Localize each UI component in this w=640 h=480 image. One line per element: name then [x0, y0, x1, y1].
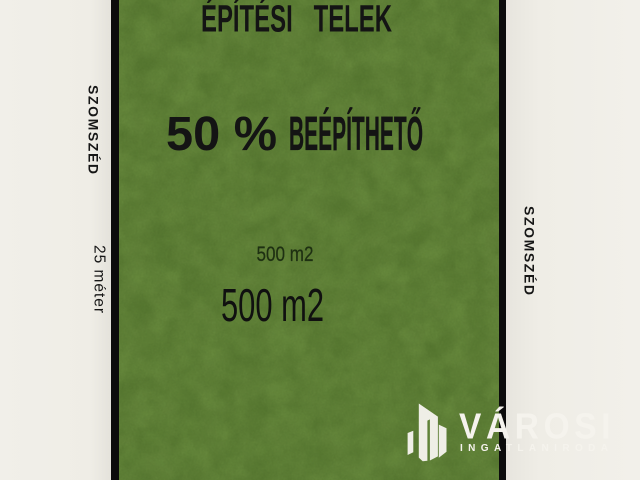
svg-text:SZOMSZÉD: SZOMSZÉD [86, 85, 102, 174]
svg-text:25 méter: 25 méter [91, 245, 108, 313]
svg-text:500 m2: 500 m2 [221, 279, 324, 331]
svg-text:500 m2: 500 m2 [257, 242, 314, 266]
svg-text:50 %: 50 % [166, 108, 277, 161]
svg-text:SZOMSZÉD: SZOMSZÉD [522, 206, 538, 295]
svg-text:ÉPÍTÉSI TELEK: ÉPÍTÉSI TELEK [201, 0, 392, 41]
svg-text:BEÉPÍTHETŐ: BEÉPÍTHETŐ [289, 107, 423, 161]
